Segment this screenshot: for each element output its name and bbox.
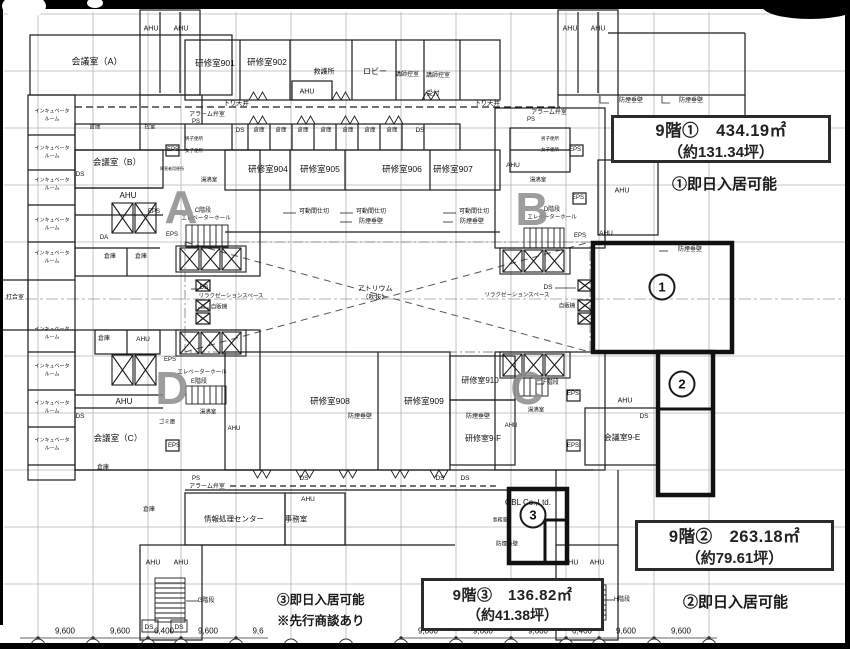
- room-label: DA: [100, 235, 108, 241]
- room-label: AHU: [300, 89, 315, 96]
- room-label: PS: [192, 119, 200, 125]
- area1-size-box: 9階① 434.19㎡ （約131.34坪）: [611, 115, 831, 163]
- room-label: 湯沸室: [200, 410, 217, 416]
- room-label: 控室: [144, 125, 155, 131]
- room-label: AHU: [144, 26, 159, 33]
- room-label: DS: [460, 476, 469, 483]
- room-label: ルーム: [45, 227, 60, 232]
- room-label: インキュベータ: [34, 110, 69, 115]
- room-label: 研修室902: [247, 58, 287, 67]
- room-label: AHU: [174, 26, 189, 33]
- area-marker-2: 2: [669, 371, 696, 398]
- room-label: DS: [75, 414, 84, 421]
- room-label: アラーム弁室: [189, 112, 225, 118]
- room-label: DS: [75, 172, 84, 179]
- room-label: 会議室（A）: [71, 58, 122, 67]
- room-label: AHU: [615, 188, 630, 195]
- room-label: 救護所: [314, 69, 335, 76]
- room-label: PS: [527, 117, 535, 123]
- room-label: 事務室: [492, 519, 507, 524]
- area3-size-text: 9階③ 136.82㎡: [453, 584, 573, 605]
- room-label: 研修室905: [300, 165, 340, 174]
- area1-tsubo-text: （約131.34坪）: [668, 141, 774, 162]
- zone-letter-b: B: [515, 182, 548, 236]
- room-label: 女子便所: [541, 148, 559, 153]
- room-label: EPS: [148, 209, 160, 215]
- room-label: ルーム: [45, 187, 60, 192]
- room-label: AHU: [618, 398, 633, 405]
- room-label: AHU: [228, 426, 241, 432]
- room-label: 防煙垂壁: [348, 414, 372, 420]
- room-label: ルーム: [45, 155, 60, 160]
- room-label: 倉庫: [275, 128, 286, 134]
- room-label: 倉庫: [97, 465, 109, 471]
- room-label: 倉庫: [98, 336, 110, 342]
- room-label: DS: [235, 128, 244, 135]
- room-label: インキュベータ: [34, 219, 69, 224]
- area1-availability-note: ①即日入居可能: [672, 173, 777, 194]
- area1-size-text: 9階① 434.19㎡: [655, 117, 786, 141]
- zone-letter-c: C: [510, 361, 543, 415]
- room-label: 倉庫: [297, 128, 308, 134]
- room-label: DS: [543, 285, 552, 292]
- room-label: 防煙垂壁: [678, 247, 702, 253]
- room-label: ルーム: [45, 447, 60, 452]
- dimension-label: 9,600: [671, 627, 691, 636]
- room-label: 下り天井: [474, 101, 500, 108]
- room-label: ルーム: [45, 373, 60, 378]
- room-label: 防煙垂壁: [359, 219, 383, 225]
- room-label: 防煙垂壁: [679, 98, 703, 104]
- room-label: AHU: [591, 26, 606, 33]
- room-label: 会議室（C）: [94, 434, 143, 443]
- area2-availability-note: ②即日入居可能: [683, 591, 788, 612]
- room-label: 研修室907: [433, 165, 473, 174]
- room-label: 研修室906: [382, 165, 422, 174]
- room-label: 倉庫: [364, 128, 375, 134]
- room-label: アトリウム: [358, 286, 393, 293]
- room-label: 防煙垂壁: [466, 414, 490, 420]
- area3-size-box: 9階③ 136.82㎡ （約41.38坪）: [421, 578, 604, 631]
- area3-availability-note: ③即日入居可能 ※先行商談あり: [277, 590, 365, 633]
- room-label: 可動間仕切: [356, 209, 386, 215]
- room-label: AHU: [174, 560, 189, 567]
- room-label: 会議室（B）: [93, 158, 141, 167]
- room-label: 研修室904: [248, 165, 288, 174]
- area-marker-1: 1: [649, 274, 676, 301]
- dimension-label: 9,600: [616, 627, 636, 636]
- room-label: AHU: [116, 398, 133, 406]
- room-label: 防煙垂壁: [460, 219, 484, 225]
- room-label: インキュベータ: [34, 147, 69, 152]
- room-label: EPS: [567, 391, 579, 397]
- room-label: 湯沸室: [201, 178, 218, 184]
- room-label: PS: [192, 476, 200, 482]
- room-label: 下り天井: [223, 101, 249, 108]
- room-label: H階段: [614, 597, 630, 603]
- area2-tsubo-text: （約79.61坪）: [686, 547, 784, 568]
- room-label: 女子便所: [185, 149, 203, 154]
- room-label: DS: [639, 414, 648, 421]
- room-label: リラクゼーションスペース: [198, 294, 263, 300]
- room-label: 倉庫: [143, 507, 155, 513]
- room-label: インキュベータ: [34, 328, 69, 333]
- dimension-label: 9,600: [198, 627, 218, 636]
- room-label: DS: [174, 625, 183, 632]
- room-label: 事務室: [285, 515, 308, 523]
- room-label: EPS: [574, 233, 586, 239]
- room-label: AHU: [120, 192, 137, 200]
- room-label: 倉庫: [135, 254, 147, 260]
- room-label: インキュベータ: [34, 252, 69, 257]
- dimension-label: 9,600: [55, 627, 75, 636]
- room-label: 講師控室: [426, 73, 450, 79]
- room-label: 倉庫: [104, 254, 116, 260]
- area2-size-text: 9階② 263.18㎡: [669, 523, 800, 547]
- room-label: 男子便所: [185, 137, 203, 142]
- room-label: 打合室: [6, 295, 24, 301]
- room-label: AHU: [563, 26, 578, 33]
- room-label: DS: [199, 285, 208, 292]
- room-label: DS: [415, 128, 424, 135]
- room-label: F階段: [543, 380, 559, 386]
- room-label: 会議室9-E: [604, 434, 640, 442]
- room-label: 研修室908: [310, 397, 350, 406]
- floorplan-page: AHUAHUAHUAHU会議室（A）研修室901研修室902救護所ロビー講師控室…: [0, 0, 850, 649]
- room-label: E階段: [191, 379, 207, 385]
- room-label: 倉庫: [386, 128, 397, 134]
- room-label: 倉庫: [342, 128, 353, 134]
- area3-note-line2: ※先行商談あり: [277, 611, 365, 632]
- room-label: AHU: [146, 560, 161, 567]
- room-label: 防煙垂壁: [619, 98, 643, 104]
- area3-tsubo-text: （約41.38坪）: [467, 605, 558, 625]
- room-label: AHU: [506, 163, 520, 170]
- room-label: 研修室9-F: [465, 435, 501, 443]
- room-label: 可動間仕切: [299, 209, 329, 215]
- room-label: 可動間仕切: [459, 209, 489, 215]
- room-label: AHU: [301, 497, 315, 504]
- room-label: インキュベータ: [34, 179, 69, 184]
- room-label: AHU: [136, 337, 150, 344]
- room-label: ロビー: [363, 68, 387, 76]
- room-label: インキュベータ: [34, 439, 69, 444]
- zone-letter-a: A: [164, 180, 197, 234]
- room-label: ルーム: [45, 410, 60, 415]
- room-label: ルーム: [45, 118, 60, 123]
- room-label: インキュベータ: [34, 365, 69, 370]
- room-label: 自販機: [211, 305, 228, 311]
- room-label: ルーム: [45, 260, 60, 265]
- room-label: DS: [435, 476, 444, 483]
- room-label: 情報処理センター: [204, 515, 264, 523]
- room-label: アラーム弁室: [189, 484, 225, 490]
- room-label: DS: [299, 476, 308, 483]
- room-label: G階段: [198, 598, 215, 604]
- room-label: EPS: [167, 147, 179, 153]
- room-label: 倉庫: [89, 125, 100, 131]
- room-label: ゴミ庫: [159, 420, 176, 426]
- room-label: 自販機: [559, 304, 576, 310]
- room-label: 研修室901: [195, 59, 235, 68]
- room-label: 講師控室: [395, 72, 419, 78]
- room-label: 研修室910: [461, 377, 498, 385]
- room-label: アラーム弁室: [531, 110, 567, 116]
- room-label: ルーム: [45, 336, 60, 341]
- dimension-label: 6,400: [154, 627, 174, 636]
- room-label: 倉庫: [253, 128, 264, 134]
- room-label: （吹抜）: [362, 295, 388, 302]
- room-label: AHU: [505, 423, 518, 429]
- dimension-label: 9,600: [110, 627, 130, 636]
- room-label: 男子便所: [541, 137, 559, 142]
- room-label: AHU: [564, 560, 579, 567]
- room-label: EPS: [572, 195, 584, 201]
- room-label: DS: [144, 625, 153, 632]
- room-label: 受付: [427, 91, 440, 98]
- dimension-line: [20, 637, 717, 640]
- room-label: 障害者用便所: [160, 167, 184, 171]
- room-label: インキュベータ: [34, 402, 69, 407]
- room-label: 防煙垂壁: [496, 542, 518, 548]
- zone-letter-d: D: [155, 361, 188, 415]
- area-marker-3: 3: [520, 502, 547, 529]
- room-label: AHU: [590, 560, 605, 567]
- walls: [2, 10, 745, 640]
- room-label: リラクゼーションスペース: [484, 293, 549, 299]
- room-label: EPS: [567, 443, 579, 449]
- area3-note-line1: ③即日入居可能: [277, 590, 365, 611]
- area2-size-box: 9階② 263.18㎡ （約79.61坪）: [635, 520, 834, 571]
- room-label: 倉庫: [320, 128, 331, 134]
- room-label: EPS: [569, 147, 581, 153]
- room-label: 研修室909: [404, 397, 444, 406]
- dimension-label: 9,6: [252, 627, 263, 636]
- room-label: AHU: [599, 231, 613, 238]
- room-label: EPS: [168, 443, 180, 449]
